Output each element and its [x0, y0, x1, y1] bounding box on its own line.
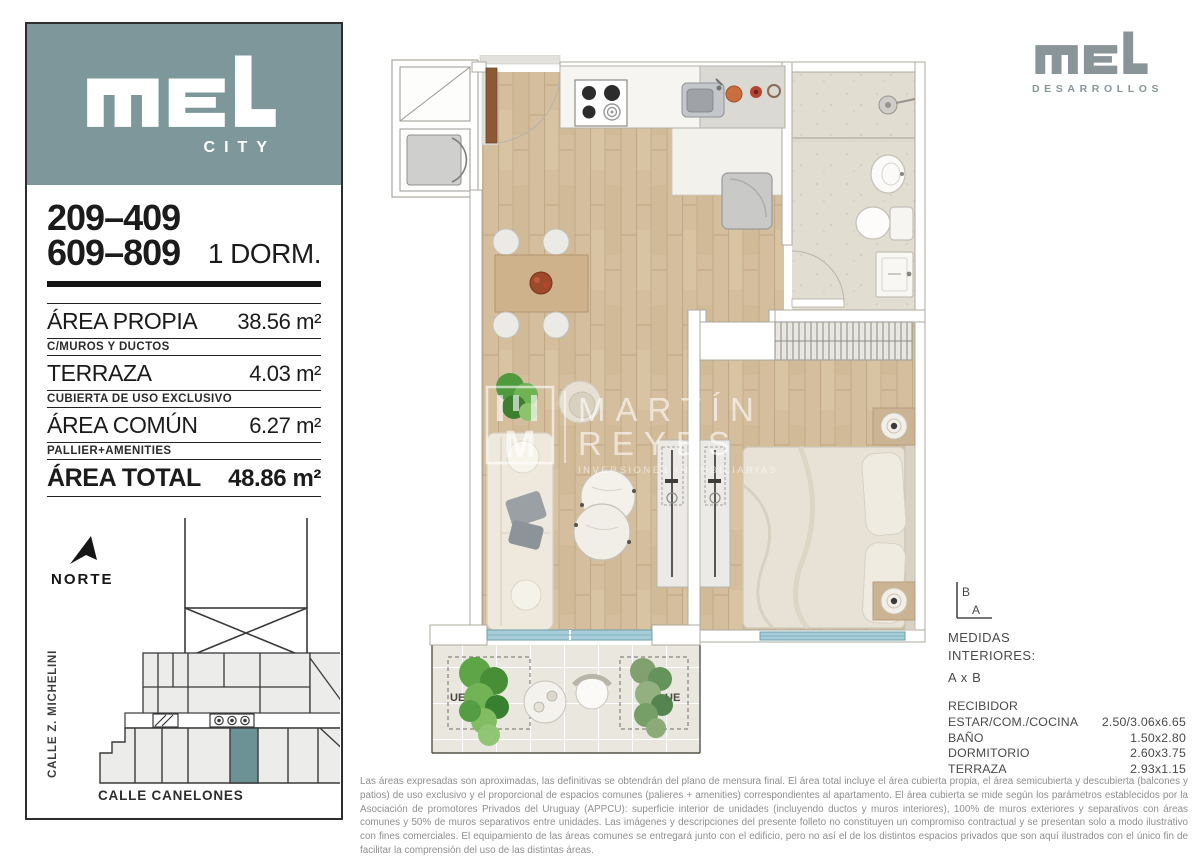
divider-double-rule — [47, 281, 321, 287]
measures-heading-2: INTERIORES: — [948, 647, 1186, 665]
met-logo — [1032, 30, 1154, 77]
wall-panel-bedroom-side — [700, 440, 730, 587]
area-value: 4.03 m² — [249, 361, 321, 387]
area-table: ÁREA PROPIA 38.56 m² C/MUROS Y DUCTOS TE… — [47, 303, 321, 497]
watermark-name-2: REYES — [578, 425, 740, 462]
watermark-initial: M — [504, 424, 536, 466]
unit-type: 1 DORM. — [208, 238, 321, 271]
interior-measures: B A MEDIDAS INTERIORES: A x B RECIBIDOR … — [948, 578, 1186, 778]
area-label: TERRAZA — [47, 360, 152, 387]
terrace: UE UE — [432, 645, 700, 753]
fridge-icon — [722, 173, 772, 229]
area-value: 38.56 m² — [237, 309, 321, 335]
entry-corridor-floor — [480, 55, 560, 64]
pillow — [861, 452, 907, 537]
measures-axb: A x B — [948, 670, 1186, 685]
stove-icon — [575, 80, 627, 126]
area-label: ÁREA TOTAL — [47, 464, 201, 493]
area-label: ÁREA COMÚN — [47, 412, 198, 439]
bedroom-closet — [775, 322, 912, 360]
kitchen-sink-icon — [682, 79, 724, 117]
area-value: 48.86 m² — [228, 465, 321, 493]
unit-range-1: 209–409 — [47, 201, 180, 236]
vanity-icon — [876, 252, 913, 297]
met-city-logo-block: CITY — [27, 24, 341, 185]
table-row-total: ÁREA TOTAL 48.86 m² — [47, 460, 321, 496]
street-label-bottom: CALLE CANELONES — [98, 788, 244, 803]
area-note: CUBIERTA DE USO EXCLUSIVO — [47, 391, 321, 407]
measure-label: ESTAR/COM./COCINA — [948, 715, 1078, 731]
unit-numbers: 209–409 609–809 1 DORM. — [27, 185, 341, 271]
wall-panel-living-side — [657, 440, 688, 587]
terrace-glass-door — [487, 630, 652, 640]
dining-chair — [543, 312, 569, 338]
north-arrow-icon — [70, 536, 97, 564]
ue-label-left: UE — [450, 692, 465, 704]
measure-value: 2.50/3.06x6.65 — [1102, 715, 1186, 731]
measure-row: RECIBIDOR — [948, 699, 1186, 715]
city-label: CITY — [82, 139, 286, 157]
area-note: C/MUROS Y DUCTOS — [47, 339, 321, 355]
highlighted-unit — [230, 728, 258, 783]
toilet-icon — [856, 207, 913, 240]
north-label: NORTE — [51, 571, 114, 588]
door-jamb — [769, 310, 775, 322]
measures-table: RECIBIDOR ESTAR/COM./COCINA 2.50/3.06x6.… — [948, 699, 1186, 778]
measure-label: BAÑO — [948, 731, 984, 747]
axis-a-label: A — [972, 603, 980, 617]
bedroom-window — [760, 632, 905, 640]
site-upper-units — [143, 653, 340, 715]
measure-value: 1.50x2.80 — [1130, 731, 1186, 747]
dining-chair — [493, 312, 519, 338]
measure-row: BAÑO 1.50x2.80 — [948, 731, 1186, 747]
site-lower-units — [100, 728, 340, 783]
measure-row: ESTAR/COM./COCINA 2.50/3.06x6.65 — [948, 715, 1186, 731]
watermark-name-1: MARTÍN — [578, 391, 764, 428]
door-jamb — [700, 310, 706, 322]
floor-plan-svg: UE UE — [360, 55, 935, 765]
desarrollos-label: DESARROLLOS — [1032, 83, 1182, 95]
watermark-tagline: INVERSIONES INMOBILIARIAS — [578, 465, 778, 476]
site-plan-svg: NORTE — [40, 510, 340, 810]
met-desarrollos-logo: DESARROLLOS — [1032, 30, 1182, 95]
unit-range-2: 609–809 — [47, 236, 180, 271]
street-label-left: CALLE Z. MICHELINI — [47, 650, 59, 778]
legal-disclaimer: Las áreas expresadas son aproximadas, la… — [360, 775, 1188, 858]
measure-row: DORMITORIO 2.60x3.75 — [948, 746, 1186, 762]
nightstand-top — [873, 408, 915, 445]
area-label: ÁREA PROPIA — [47, 308, 197, 335]
measure-label: DORMITORIO — [948, 746, 1030, 762]
table-row: ÁREA PROPIA 38.56 m² — [47, 304, 321, 338]
area-note: PALLIER+AMENITIES — [47, 443, 321, 459]
table-row: ÁREA COMÚN 6.27 m² — [47, 408, 321, 442]
axis-icon: B A — [948, 578, 998, 624]
site-corridor — [125, 713, 340, 728]
terrace-table — [524, 681, 566, 723]
table-row: TERRAZA 4.03 m² — [47, 356, 321, 390]
measure-value: 2.60x3.75 — [1130, 746, 1186, 762]
area-value: 6.27 m² — [249, 413, 321, 439]
site-tower-outline — [185, 518, 307, 658]
dining-chair — [493, 229, 519, 255]
bidet-icon — [871, 155, 905, 193]
washing-machine-icon — [407, 135, 461, 185]
dining-chair — [543, 229, 569, 255]
met-logo — [82, 53, 286, 132]
measure-label: RECIBIDOR — [948, 699, 1018, 715]
service-annex — [392, 60, 478, 197]
nightstand-bottom — [873, 582, 915, 620]
axis-b-label: B — [962, 585, 970, 599]
measures-heading-1: MEDIDAS — [948, 629, 1186, 647]
